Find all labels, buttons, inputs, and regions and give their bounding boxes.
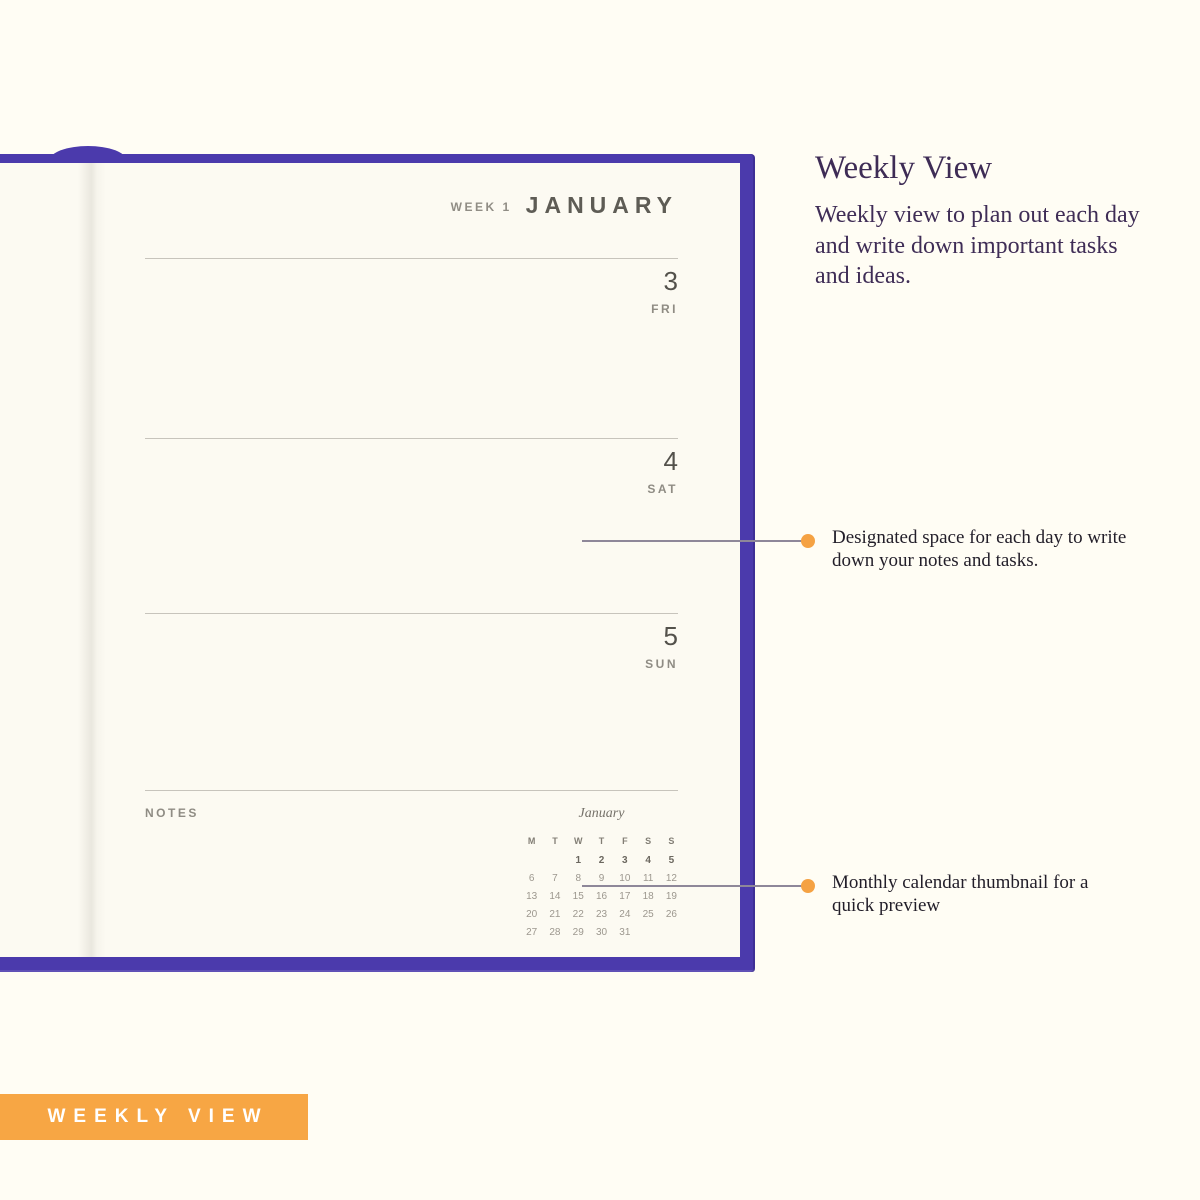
mini-calendar-day: 14 — [543, 888, 566, 906]
banner-label: WEEKLY VIEW — [39, 1106, 268, 1128]
section-banner: WEEKLY VIEW — [0, 1094, 308, 1140]
mini-calendar-weekday: F — [613, 832, 636, 852]
callout-dot-icon — [801, 879, 815, 893]
day-block-sunday: 5 SUN — [145, 623, 678, 671]
mini-calendar-day: 20 — [520, 906, 543, 924]
week-number-label: WEEK 1 — [451, 200, 512, 214]
day-divider-line — [145, 258, 678, 259]
day-weekday: FRI — [145, 302, 678, 316]
mini-calendar-day: 2 — [590, 852, 613, 870]
day-divider-line — [145, 790, 678, 791]
feature-title: Weekly View — [815, 150, 992, 186]
mini-calendar-day: 13 — [520, 888, 543, 906]
day-divider-line — [145, 438, 678, 439]
month-title: JANUARY — [526, 192, 678, 218]
day-weekday: SUN — [145, 657, 678, 671]
mini-calendar-day: 26 — [660, 906, 683, 924]
mini-calendar-day: 17 — [613, 888, 636, 906]
callout-connector-line — [582, 885, 802, 887]
mini-calendar-day: 27 — [520, 924, 543, 942]
mini-calendar-weekday: T — [543, 832, 566, 852]
callout-designated-space: Designated space for each day to write d… — [832, 527, 1132, 573]
mini-calendar-weekday: S — [636, 832, 659, 852]
mini-calendar-day: 19 — [660, 888, 683, 906]
mini-calendar-day: 6 — [520, 870, 543, 888]
mini-calendar-weekday: T — [590, 832, 613, 852]
mini-calendar-day: 28 — [543, 924, 566, 942]
feature-description: Weekly view to plan out each day and wri… — [815, 200, 1150, 292]
callout-monthly-thumbnail: Monthly calendar thumbnail for a quick p… — [832, 872, 1132, 918]
day-date: 4 — [145, 448, 678, 474]
mini-calendar-weekday: W — [567, 832, 590, 852]
mini-calendar-day: 1 — [567, 852, 590, 870]
mini-calendar-day: 21 — [543, 906, 566, 924]
weekly-view-feature-page: { "colors": { "background": "#FFFDF4", "… — [0, 0, 1200, 1200]
planner-page-header: WEEK 1JANUARY — [145, 192, 678, 219]
mini-calendar-day: 7 — [543, 870, 566, 888]
mini-calendar-day: 25 — [636, 906, 659, 924]
mini-calendar-weekday: S — [660, 832, 683, 852]
mini-calendar-day — [660, 924, 683, 942]
mini-calendar-day: 24 — [613, 906, 636, 924]
day-block-saturday: 4 SAT — [145, 448, 678, 496]
mini-calendar-day — [520, 852, 543, 870]
mini-calendar-day: 22 — [567, 906, 590, 924]
mini-calendar-day: 16 — [590, 888, 613, 906]
notes-label: NOTES — [145, 806, 199, 820]
mini-calendar-day: 15 — [567, 888, 590, 906]
mini-calendar-day: 4 — [636, 852, 659, 870]
mini-calendar-grid: M T W T F S S 1 2 3 4 5 6 7 8 9 10 11 12… — [520, 832, 683, 942]
mini-calendar-day — [543, 852, 566, 870]
day-weekday: SAT — [145, 482, 678, 496]
day-block-friday: 3 FRI — [145, 268, 678, 316]
callout-connector-line — [582, 540, 802, 542]
mini-calendar-day: 18 — [636, 888, 659, 906]
callout-dot-icon — [801, 534, 815, 548]
mini-calendar-day: 23 — [590, 906, 613, 924]
mini-month-calendar: January M T W T F S S 1 2 3 4 5 6 7 8 9 … — [520, 806, 683, 942]
day-date: 3 — [145, 268, 678, 294]
mini-calendar-day: 5 — [660, 852, 683, 870]
mini-calendar-day: 3 — [613, 852, 636, 870]
mini-calendar-weekday: M — [520, 832, 543, 852]
day-divider-line — [145, 613, 678, 614]
mini-calendar-day: 31 — [613, 924, 636, 942]
mini-calendar-day: 30 — [590, 924, 613, 942]
mini-calendar-day: 29 — [567, 924, 590, 942]
day-date: 5 — [145, 623, 678, 649]
mini-calendar-day — [636, 924, 659, 942]
mini-calendar-title: January — [520, 806, 683, 822]
